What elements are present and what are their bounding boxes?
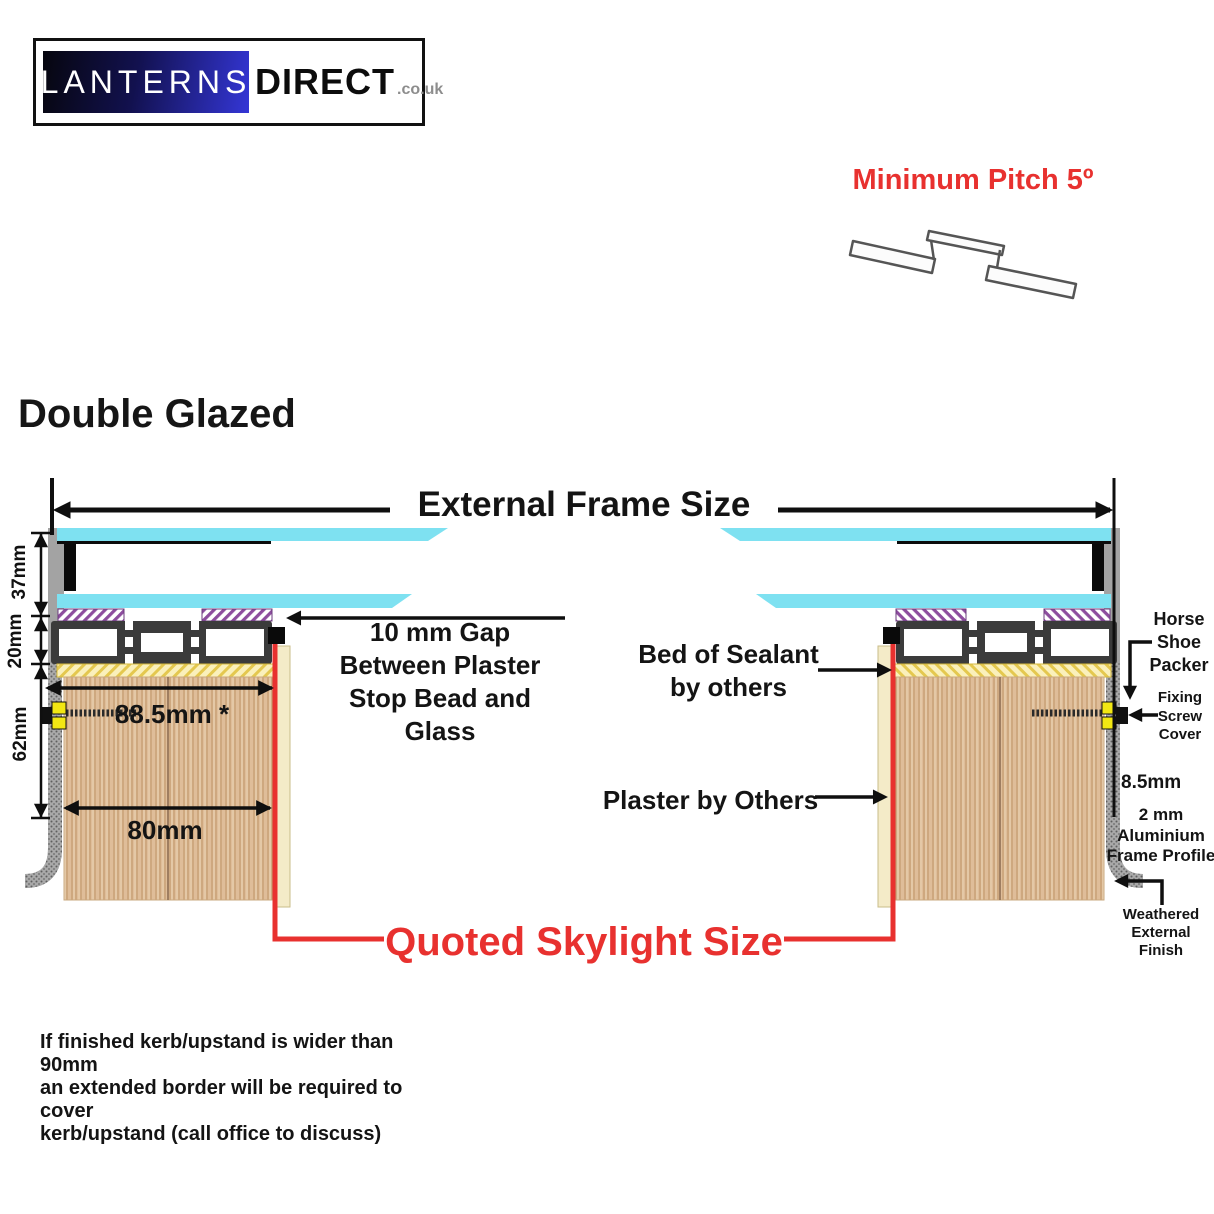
dim-37mm-label: 37mm: [8, 537, 32, 607]
dim-8-5mm-label: 8.5mm: [1121, 771, 1201, 795]
horse-shoe-packer-note: Horse Shoe Packer: [1134, 608, 1214, 677]
aluminium-frame-profile-note: 2 mm Aluminium Frame Profile: [1104, 805, 1214, 867]
fixing-screw-cover-note: Fixing Screw Cover: [1140, 689, 1214, 745]
dim-62mm-label: 62mm: [9, 699, 33, 769]
dim-20mm-label: 20mm: [4, 606, 28, 676]
weathered-external-finish-note: Weathered External Finish: [1106, 906, 1214, 960]
kerb-upstand-footnote: If finished kerb/upstand is wider than 9…: [40, 1031, 435, 1146]
external-frame-size-label: External Frame Size: [389, 483, 779, 527]
quoted-skylight-size-label: Quoted Skylight Size: [384, 917, 784, 967]
bed-of-sealant-note: Bed of Sealant by others: [616, 638, 841, 704]
pitch-sketch: [850, 231, 1076, 298]
plaster-by-others-note: Plaster by Others: [598, 784, 823, 817]
page: LANTERNS DIRECT .co.uk Minimum Pitch 5º …: [0, 0, 1214, 1214]
dim-80mm-label: 80mm: [85, 814, 245, 847]
plaster-gap-note: 10 mm Gap Between Plaster Stop Bead and …: [330, 616, 550, 748]
dim-88-5mm-label: 88.5mm *: [92, 698, 252, 731]
